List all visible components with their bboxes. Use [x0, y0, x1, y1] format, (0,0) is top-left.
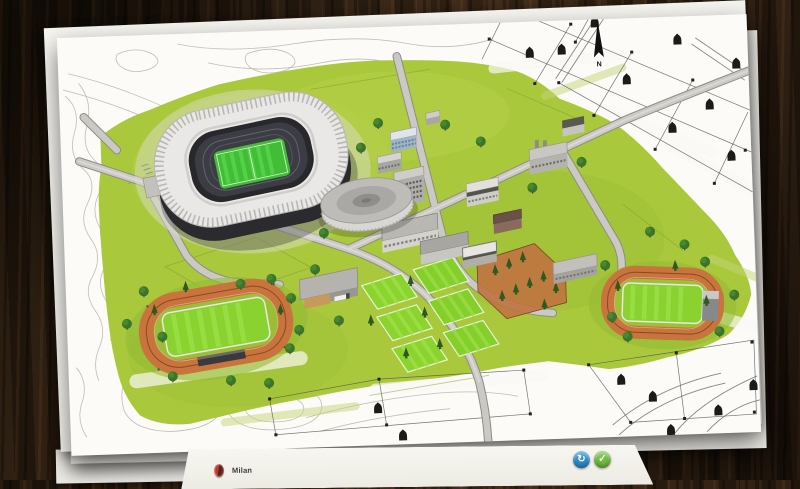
confirm-button[interactable]: ✓	[594, 451, 611, 468]
confirm-icon: ✓	[594, 450, 611, 467]
game-screenshot: { "scene": { "description": "club facili…	[0, 0, 800, 480]
facilities-map-sheet: N	[57, 14, 761, 456]
bottom-bar: Milan ↻ ✓	[181, 445, 653, 489]
club-crest-icon	[214, 464, 224, 477]
club-header-row: Milan ↻ ✓	[181, 445, 653, 487]
north-label: N	[597, 61, 602, 68]
continue-icon: ↻	[573, 451, 590, 468]
club-name-label: Milan	[232, 465, 252, 474]
continue-button[interactable]: ↻	[573, 451, 590, 468]
facilities-map: N	[57, 14, 761, 456]
